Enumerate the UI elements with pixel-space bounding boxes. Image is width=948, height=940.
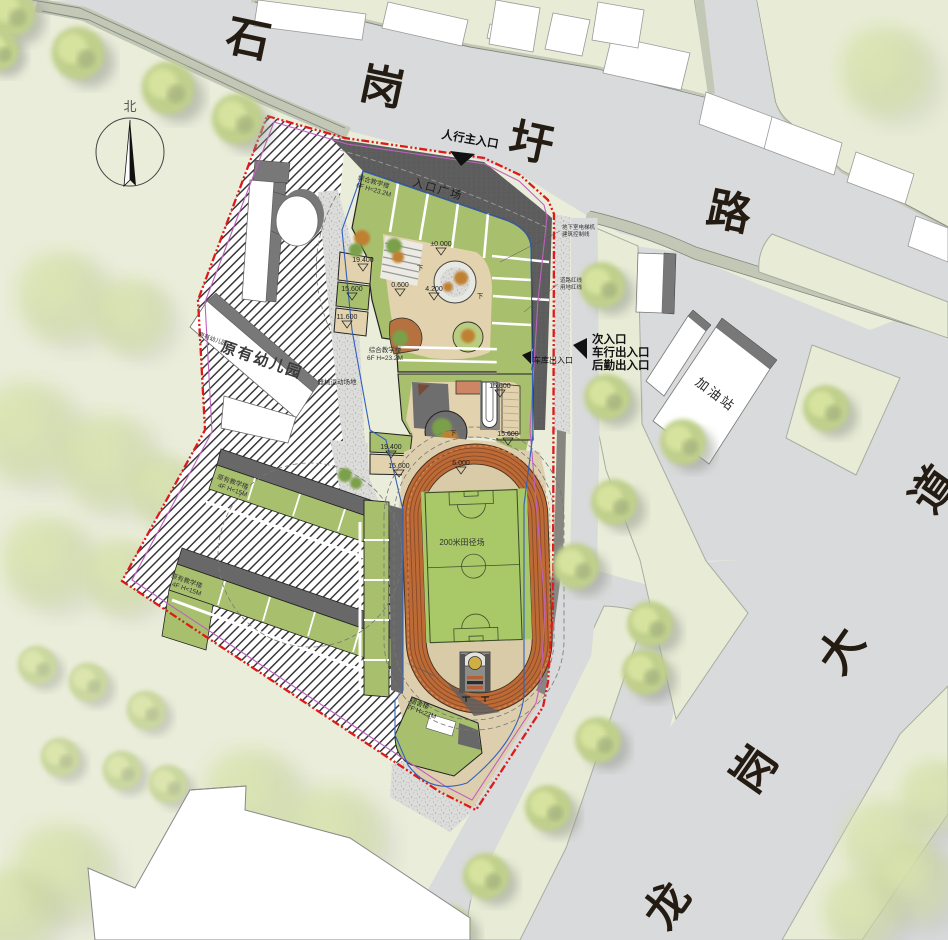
svg-text:下: 下 [477,292,484,300]
svg-text:4.200: 4.200 [425,286,443,293]
svg-text:北: 北 [123,99,136,114]
svg-text:次入口: 次入口 [592,332,627,346]
svg-text:6F H=23.2M: 6F H=23.2M [367,355,403,362]
svg-text:15.600: 15.600 [489,383,511,390]
svg-text:200米田径场: 200米田径场 [439,537,484,547]
svg-text:6.000: 6.000 [452,460,470,467]
svg-text:11.600: 11.600 [337,314,358,321]
svg-text:15.600: 15.600 [341,286,363,293]
svg-text:道路红线: 道路红线 [560,276,583,284]
svg-text:车库出入口: 车库出入口 [533,355,573,365]
svg-text:下: 下 [417,264,424,272]
svg-text:器械运动场地: 器械运动场地 [318,377,358,386]
svg-text:建筑控制线: 建筑控制线 [562,230,590,238]
svg-text:车行出入口: 车行出入口 [592,345,650,359]
svg-text:用地红线: 用地红线 [560,283,583,291]
svg-text:±0.000: ±0.000 [430,241,451,248]
svg-text:下: 下 [450,429,457,437]
svg-text:15.600: 15.600 [497,431,519,438]
svg-text:0.600: 0.600 [391,282,409,289]
svg-text:19.400: 19.400 [352,257,374,264]
svg-text:地下室电梯机: 地下室电梯机 [562,223,596,231]
svg-text:后勤出入口: 后勤出入口 [592,358,650,372]
svg-text:综合教学楼: 综合教学楼 [369,345,402,354]
svg-text:19.400: 19.400 [380,444,402,451]
svg-text:15.600: 15.600 [388,463,410,470]
